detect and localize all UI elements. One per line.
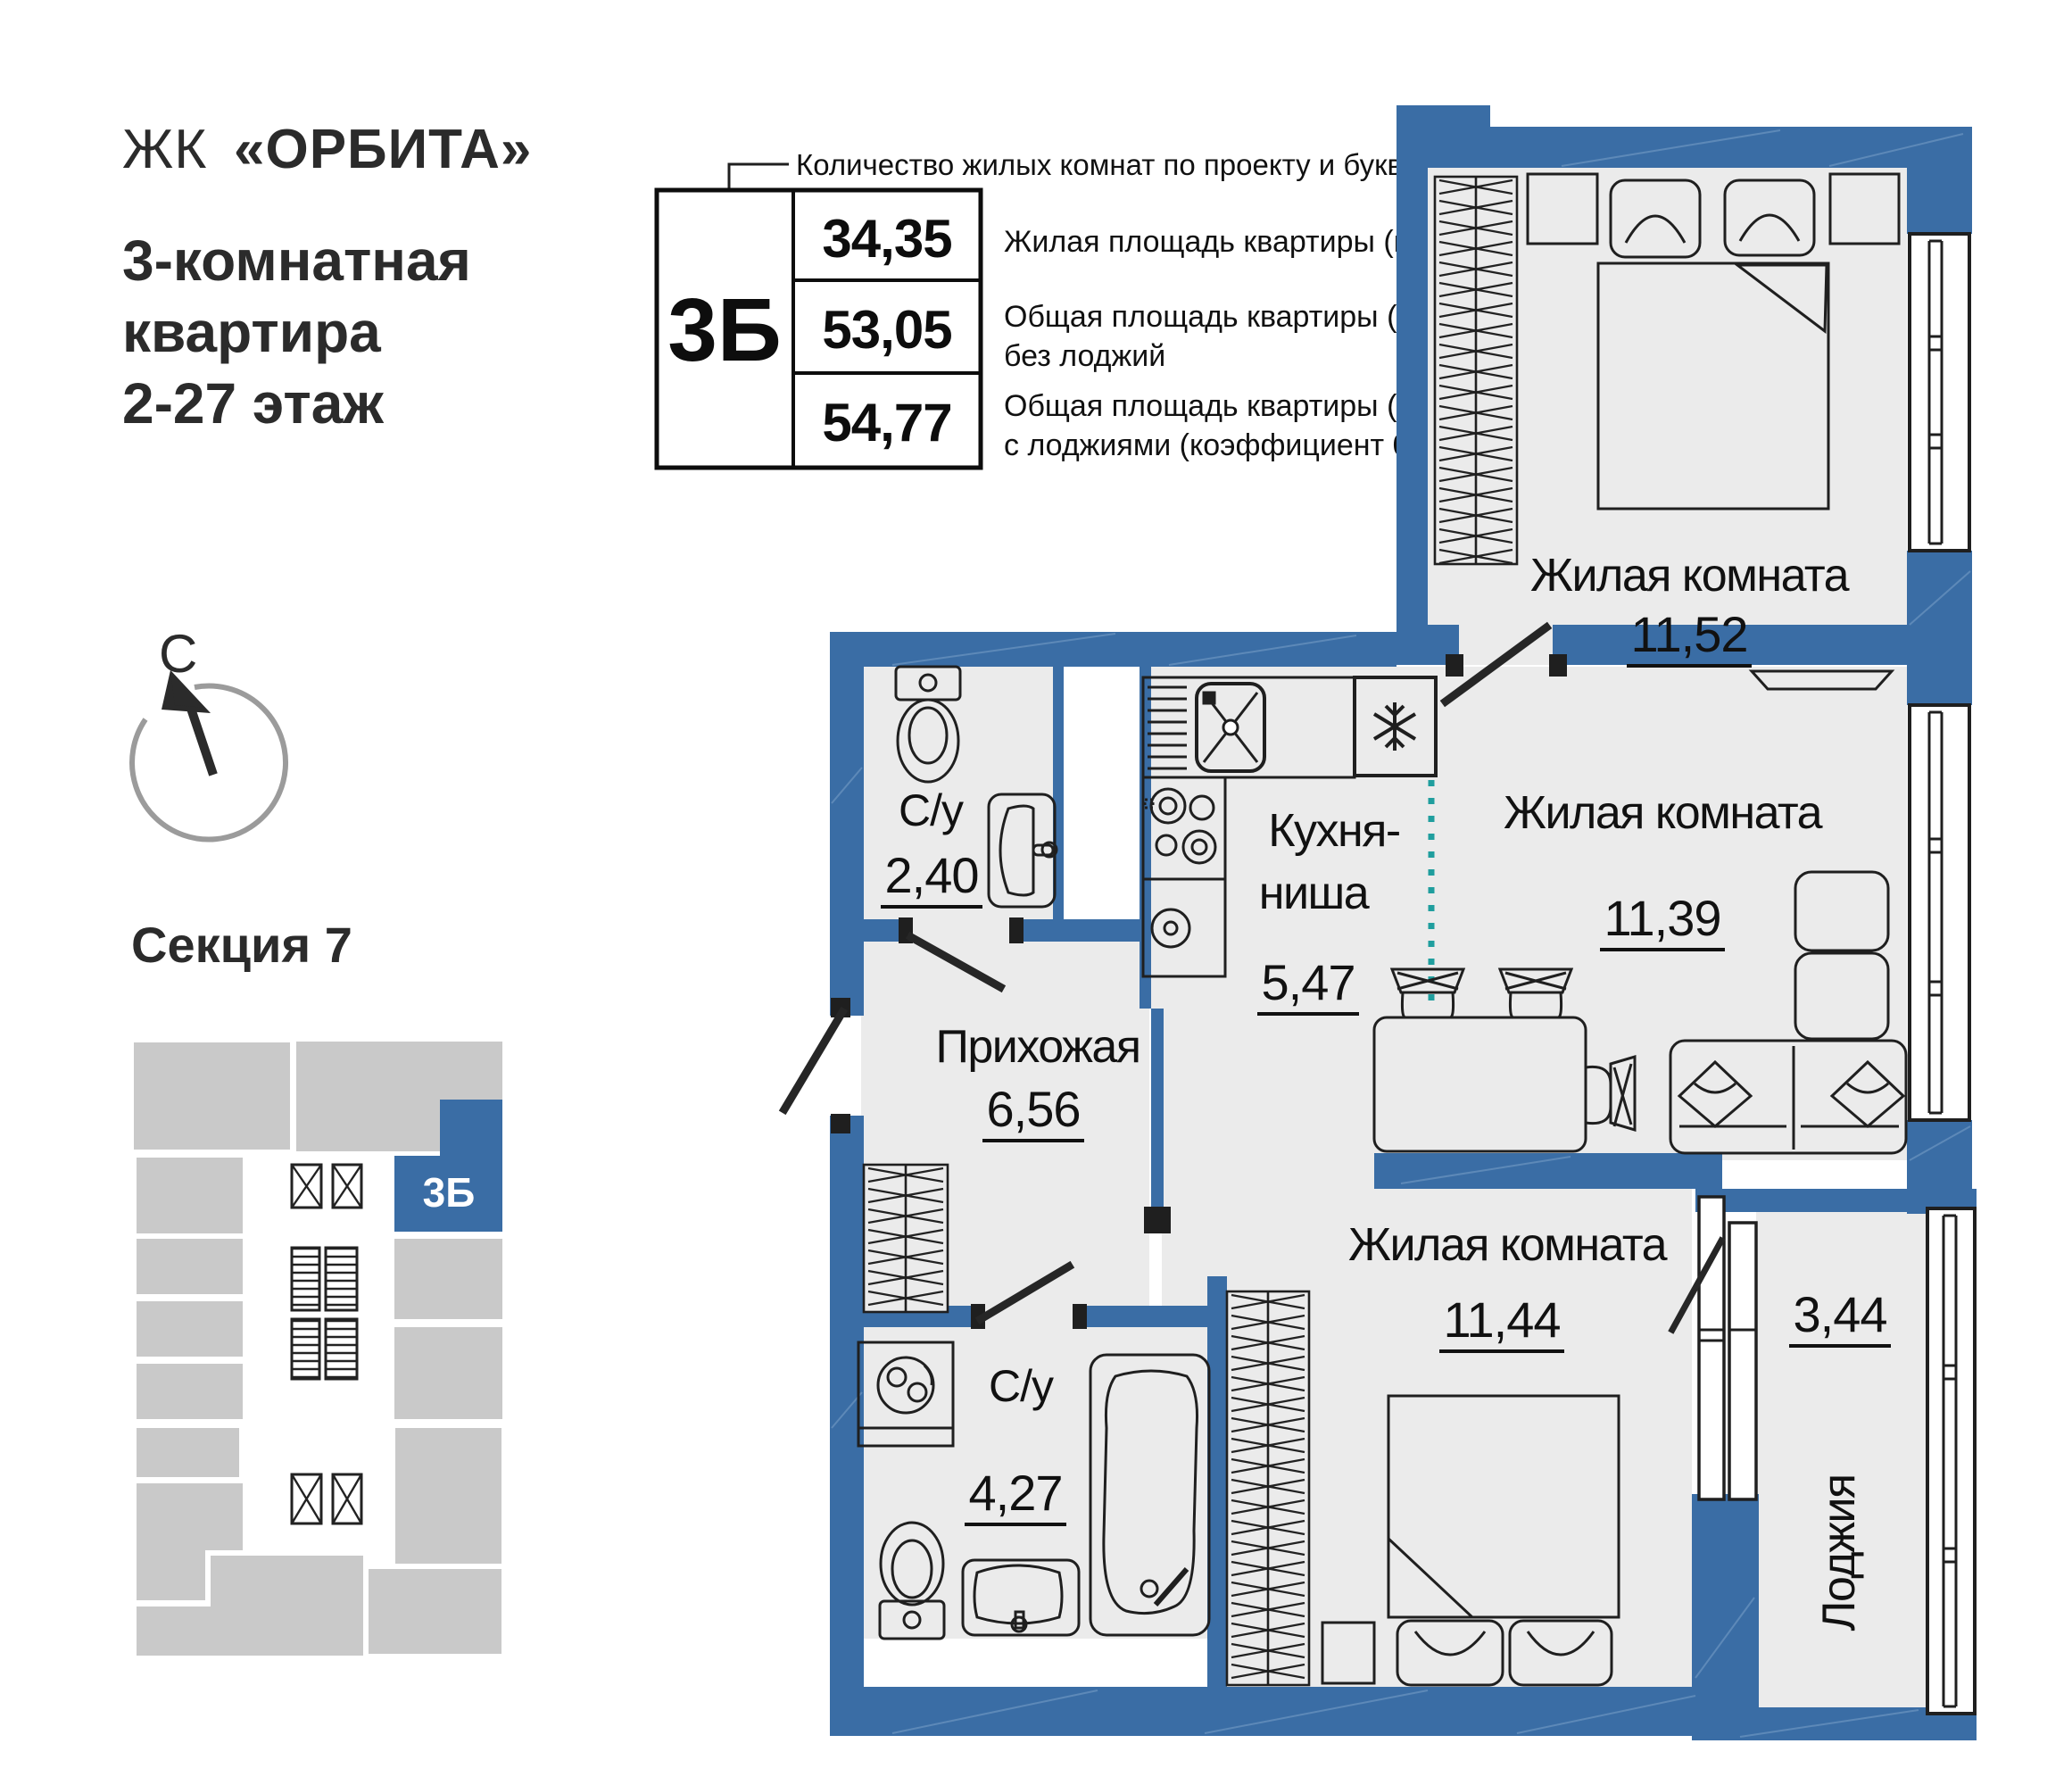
compass-icon: С — [132, 624, 286, 839]
fridge-icon — [1355, 677, 1436, 776]
legend-label-1: Жилая площадь квартиры (кв.м) — [1004, 225, 1463, 259]
bathroom427-area: 4,27 — [969, 1465, 1063, 1521]
room-area-1139: 11,39 — [1604, 890, 1721, 946]
legend-label-3b: с лоджиями (коэффициент 0,5) — [1004, 428, 1445, 462]
apartment-title-line1: 3-комнатная — [122, 228, 471, 293]
legend-label-2a: Общая площадь квартиры (кв.м) — [1004, 300, 1465, 334]
legend-value-total: 53,05 — [822, 300, 951, 360]
section-title: Секция 7 — [131, 917, 352, 973]
legend-label-3a: Общая площадь квартиры (кв.м) — [1004, 389, 1465, 423]
window-room1152 — [1910, 234, 1969, 551]
window-room1139 — [1910, 705, 1969, 1120]
compass-north-label: С — [159, 624, 197, 684]
room-label-1144: Жилая комната — [1348, 1219, 1668, 1271]
wardrobe-icon — [1227, 1291, 1309, 1685]
section-map: Секция 7 3Б — [131, 917, 502, 1656]
brand-prefix: ЖК — [122, 119, 207, 180]
loggia-label: Лоджия — [1813, 1474, 1865, 1631]
room-area-1152: 11,52 — [1631, 606, 1748, 662]
wardrobe-icon — [1435, 177, 1517, 564]
room-area-1144: 11,44 — [1444, 1291, 1561, 1348]
stairs-icons — [292, 1248, 357, 1379]
bathroom240-area: 2,40 — [885, 847, 979, 903]
hall-closet-icon — [864, 1165, 948, 1312]
room-label-1139: Жилая комната — [1504, 787, 1823, 839]
loggia-area: 3,44 — [1794, 1286, 1887, 1342]
balcony-door-window — [1699, 1197, 1756, 1499]
apartment-title-line3: 2-27 этаж — [122, 371, 384, 436]
kitchen-label-line1: Кухня- — [1268, 805, 1399, 857]
compass-arrow-shaft — [189, 703, 213, 775]
bathroom240-label: С/у — [899, 785, 964, 835]
kitchen-label-line2: ниша — [1259, 868, 1370, 919]
legend-unit-code: 3Б — [667, 280, 782, 380]
legend-value-total-loggia: 54,77 — [822, 393, 951, 452]
hallway-area: 6,56 — [987, 1081, 1081, 1137]
kitchen-area: 5,47 — [1262, 954, 1355, 1010]
header: ЖК «ОРБИТА» 3-комнатная квартира 2-27 эт… — [122, 119, 532, 436]
legend-value-living: 34,35 — [822, 209, 951, 269]
window-loggia — [1927, 1208, 1975, 1714]
floorplan-canvas: ЖК «ОРБИТА» 3-комнатная квартира 2-27 эт… — [0, 0, 2072, 1785]
brand-name: «ОРБИТА» — [234, 119, 532, 180]
floorplan-page: ЖК «ОРБИТА» 3-комнатная квартира 2-27 эт… — [0, 0, 2072, 1785]
apartment-title-line2: квартира — [122, 300, 381, 364]
hallway-label: Прихожая — [936, 1021, 1140, 1073]
legend-label-2b: без лоджий — [1004, 339, 1165, 373]
section-unit-code: 3Б — [423, 1169, 476, 1216]
door-swing-entrance — [784, 1012, 842, 1109]
room-label-1152: Жилая комната — [1530, 550, 1850, 602]
bathroom427-label: С/у — [989, 1361, 1054, 1411]
